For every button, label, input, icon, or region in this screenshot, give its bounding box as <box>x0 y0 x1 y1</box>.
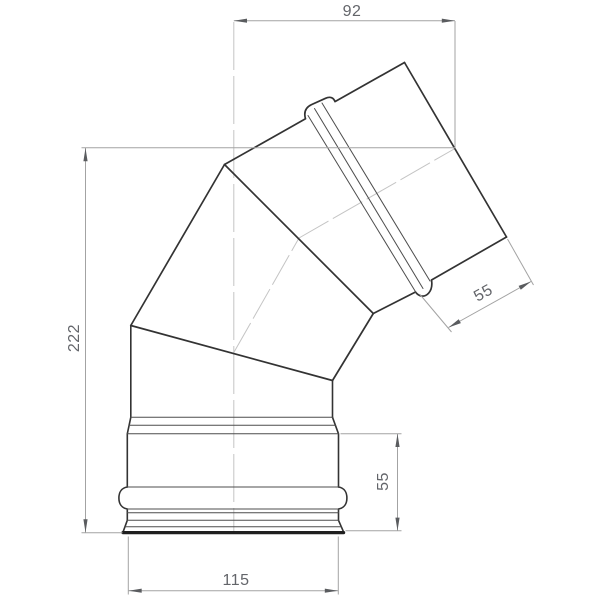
middle-segment <box>131 165 373 381</box>
dim55v-label: 55 <box>375 472 392 491</box>
dim115-arrowhead-left <box>129 589 142 593</box>
socket-bead-left-bulge <box>119 487 127 509</box>
dim55v-arrowhead-top <box>395 434 399 447</box>
socket-flare-right-side <box>339 509 344 531</box>
bottom-pipe-socket <box>119 326 347 533</box>
inclined-pipe-segment <box>225 63 507 314</box>
dim115-arrowhead-right <box>325 589 338 593</box>
dim92-arrowhead-right <box>442 19 455 23</box>
dimension-top-width: 92 <box>234 3 455 148</box>
inclined-pipe-right-edge-with-bead-bump <box>373 237 506 314</box>
dimension-overall-height: 222 <box>66 148 455 533</box>
dim55d-extension-lower <box>420 295 452 333</box>
dim222-label: 222 <box>66 324 83 352</box>
dim55v-arrowhead-bottom <box>395 518 399 531</box>
socket-step-left-side <box>127 417 131 487</box>
middle-segment-left-edge <box>131 165 225 326</box>
socket-step-right-side <box>333 417 339 487</box>
centerlines <box>234 22 455 532</box>
bead-line-1 <box>308 116 416 293</box>
socket-bead-right-bulge <box>339 487 347 509</box>
dim222-arrowhead-bottom <box>83 519 87 532</box>
elbow-technical-drawing: 92 222 55 <box>0 0 600 600</box>
dim92-label: 92 <box>343 3 362 20</box>
dim222-arrowhead-top <box>83 148 87 161</box>
dimension-base-width: 115 <box>128 537 338 595</box>
drawing-sheet: 92 222 55 <box>0 0 600 600</box>
dimension-lower-socket-depth: 55 <box>341 434 402 531</box>
socket-flare-left-side <box>123 509 127 531</box>
bead-line-2 <box>315 109 424 289</box>
inclined-pipe-left-edge-with-bead-bump <box>225 63 405 165</box>
bead-line-3 <box>322 103 430 281</box>
dim55d-arrowhead-lower <box>449 319 461 327</box>
dim115-label: 115 <box>222 572 249 589</box>
dim92-arrowhead-left <box>234 19 247 23</box>
lower-miter-joint-line <box>131 326 333 381</box>
elbow-body <box>119 63 507 533</box>
centerline-middle-axis <box>234 238 299 353</box>
dim55d-extension-upper <box>508 239 534 285</box>
middle-segment-right-edge <box>333 314 374 381</box>
dimension-upper-socket-depth: 55 <box>420 239 534 332</box>
dim55d-arrowhead-upper <box>519 282 531 290</box>
dim55d-label: 55 <box>471 281 496 305</box>
